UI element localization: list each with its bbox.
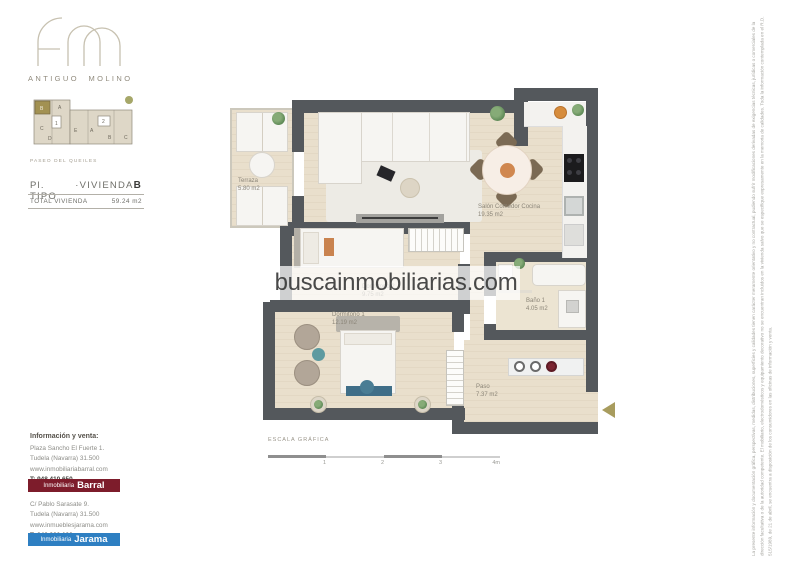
wall — [452, 422, 598, 434]
address-line: C/ Pablo Sarasate 9. — [30, 500, 108, 510]
tv-screen — [362, 217, 438, 219]
burner — [567, 158, 572, 163]
pillow — [303, 232, 319, 264]
entrance-floor — [566, 392, 598, 422]
washbasin — [566, 300, 579, 313]
room-label-salon: Salón Comedor Cocina 19.35 m2 — [478, 204, 540, 220]
kitchen-cabinet — [564, 224, 584, 246]
scale-segment — [268, 455, 326, 458]
room-label-bano: Baño 1 4.05 m2 — [526, 298, 548, 314]
unit-label: VIVIENDA — [80, 180, 134, 191]
scale-ticks: 1 2 3 4m — [268, 460, 500, 466]
jarama-banner: Inmobiliaria Jarama — [28, 533, 120, 546]
banner-prefix: Inmobiliaria — [41, 537, 72, 543]
total-row: TOTAL VIVIENDA 59.24 m2 — [30, 198, 142, 205]
plant-icon — [490, 106, 505, 121]
fruit-bowl-icon — [554, 106, 567, 119]
website: www.inmobiliariabarral.com — [30, 465, 108, 475]
city-line: Tudela (Navarra) 31.500 — [30, 454, 108, 464]
barral-banner: Inmobiliaria Barral — [28, 479, 120, 492]
wall — [292, 100, 304, 152]
keyplan-unit-d: D — [48, 136, 52, 142]
plant-icon — [418, 400, 427, 409]
wall — [452, 312, 464, 332]
wall — [263, 302, 275, 410]
kitchen-sink — [564, 196, 584, 216]
armchair — [294, 360, 320, 386]
armchair — [294, 324, 320, 350]
keyplan-unit-c2: C — [124, 135, 128, 141]
scale-segment — [326, 456, 384, 458]
brand-name: ANTIGUO MOLINO — [28, 74, 132, 83]
address-line: Plaza Sancho El Fuerte 1. — [30, 444, 108, 454]
wall — [263, 408, 465, 420]
bathtub — [532, 264, 586, 286]
keyplan-core-1: 1 — [55, 121, 58, 127]
plant-icon — [572, 104, 584, 116]
banner-name: Barral — [77, 480, 104, 491]
watermark-text: buscainmobiliarias.com — [275, 269, 518, 297]
scale-segment — [384, 455, 442, 458]
website: www.inmueblesjarama.com — [30, 521, 108, 531]
bed-cushion — [360, 380, 374, 394]
wall — [270, 300, 460, 312]
burner — [567, 170, 572, 175]
keyplan-map: B A C 1 D E A 2 B C — [28, 92, 140, 154]
side-table — [312, 348, 325, 361]
plant-icon — [272, 112, 285, 125]
keyplan-unit-c1: C — [40, 126, 44, 132]
plant-icon — [314, 400, 323, 409]
washer-icon — [514, 361, 525, 372]
brochure-page: ANTIGUO MOLINO B A C 1 D E A 2 B C PASEO… — [0, 0, 800, 565]
keyplan-core-2: 2 — [102, 119, 105, 125]
room-label-dormitorio1: Dormitorio 1 12.19 m2 — [332, 312, 365, 328]
unit-letter: B — [134, 180, 142, 191]
total-label: TOTAL VIVIENDA — [30, 198, 88, 205]
divider-line — [28, 208, 144, 209]
scale-label: ESCALA GRÁFICA — [268, 437, 329, 443]
scale-segment — [442, 456, 500, 458]
tree-marker-icon — [125, 96, 133, 104]
burner — [576, 170, 581, 175]
scale-bar — [268, 455, 500, 458]
total-area: 59.24 m2 — [112, 198, 142, 205]
wall — [586, 330, 598, 392]
legal-disclaimer: La presente información y documentación … — [750, 8, 794, 556]
washer-icon — [530, 361, 541, 372]
street-label: PASEO DEL QUEILES — [30, 159, 98, 164]
terrace-table — [249, 152, 275, 178]
banner-prefix: Inmobiliaria — [43, 483, 74, 489]
radiator — [446, 350, 464, 406]
antiguo-molino-logo — [30, 12, 122, 70]
divider-line — [28, 194, 144, 195]
wardrobe — [408, 228, 464, 252]
washer-icon — [546, 361, 557, 372]
burner — [576, 158, 581, 163]
contact-heading: Información y venta: — [30, 433, 98, 440]
wall — [586, 88, 598, 330]
table-centerpiece — [500, 163, 515, 178]
city-line: Tudela (Navarra) 31.500 — [30, 510, 108, 520]
banner-name: Jarama — [74, 534, 107, 545]
blanket — [324, 238, 334, 256]
pouf — [400, 178, 420, 198]
wall — [484, 330, 586, 340]
entrance-arrow-icon — [602, 402, 615, 418]
sofa-chaise — [318, 112, 362, 184]
room-label-terraza: Terraza 5.80 m2 — [238, 178, 260, 194]
pillows — [344, 333, 392, 345]
watermark-band: buscainmobiliarias.com — [272, 266, 520, 300]
room-label-paso: Paso 7.37 m2 — [476, 384, 498, 400]
